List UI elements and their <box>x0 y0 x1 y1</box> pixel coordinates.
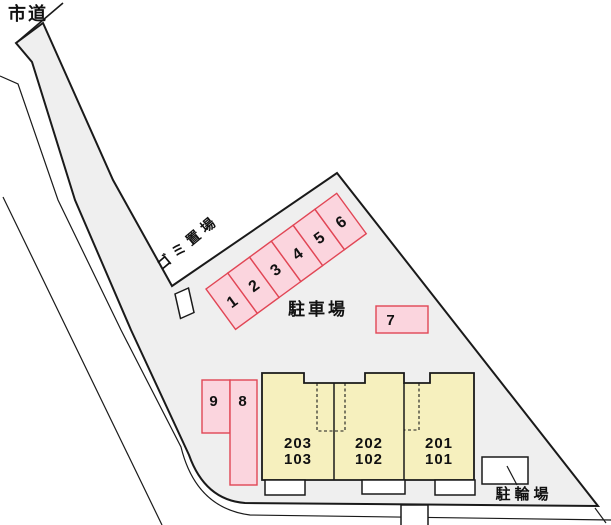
site-plan-page: 市道 ゴミ置場 駐車場 1 2 3 4 5 6 7 <box>0 0 611 525</box>
unit-number-upper: 202 <box>355 435 383 452</box>
parking-space-8: 8 <box>230 380 257 485</box>
unit-number-lower: 102 <box>355 451 383 468</box>
unit-number-upper: 201 <box>425 435 453 452</box>
unit-202-102-label: 202 102 <box>355 435 383 468</box>
entrance-step-box <box>401 505 428 525</box>
unit-number-upper: 203 <box>284 435 312 452</box>
building: 203 103 202 102 201 101 <box>262 373 475 495</box>
unit-number-lower: 103 <box>284 451 312 468</box>
city-road-label: 市道 <box>8 3 48 24</box>
bicycle-parking-label: 駐輪場 <box>495 485 552 503</box>
site-plan-map: 市道 ゴミ置場 駐車場 1 2 3 4 5 6 7 <box>0 0 611 525</box>
parking-space-number: 8 <box>238 393 247 410</box>
parking-space-number: 7 <box>386 312 395 329</box>
parking-lot-label: 駐車場 <box>288 299 348 319</box>
unit-number-lower: 101 <box>425 451 453 468</box>
entrance-porch-1 <box>265 480 305 495</box>
parking-space-9: 9 <box>202 380 230 433</box>
unit-201-101-label: 201 101 <box>425 435 453 468</box>
corner-edge-line <box>595 508 606 523</box>
unit-203-103-label: 203 103 <box>284 435 312 468</box>
parking-space-rect <box>376 306 428 333</box>
parking-space-number: 9 <box>209 393 218 410</box>
entrance-porch-3 <box>435 480 475 495</box>
entrance-porch-2 <box>362 480 405 494</box>
parking-space-7: 7 <box>376 306 428 333</box>
bicycle-parking-box <box>482 457 528 484</box>
